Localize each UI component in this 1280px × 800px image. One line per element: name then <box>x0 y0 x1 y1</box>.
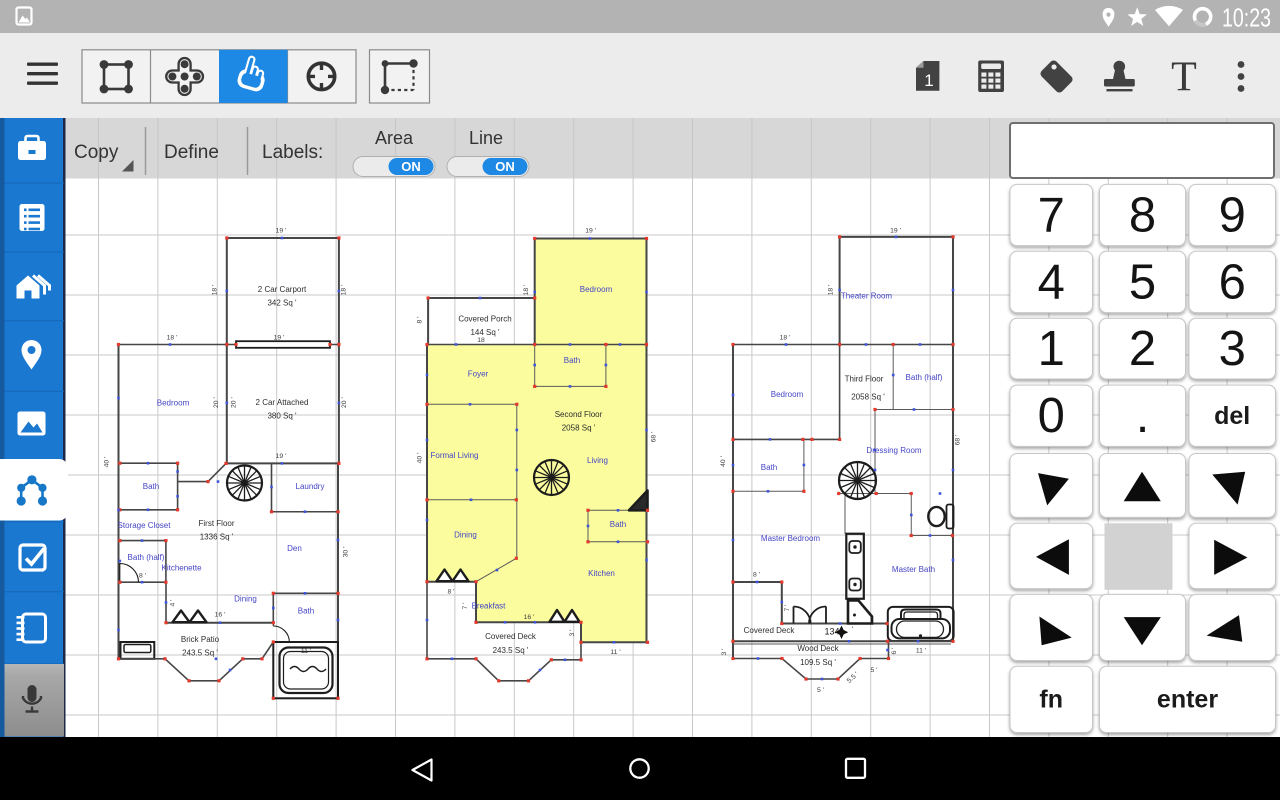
svg-text:ON: ON <box>401 159 421 174</box>
svg-text:Bath: Bath <box>761 463 777 472</box>
svg-text:Dining: Dining <box>234 595 257 604</box>
svg-text:Wood Deck: Wood Deck <box>797 644 839 653</box>
svg-text:Bath (half): Bath (half) <box>906 373 943 382</box>
svg-text:Dressing Room: Dressing Room <box>866 446 921 455</box>
svg-text:5: 5 <box>1129 255 1156 309</box>
svg-text:0: 0 <box>1038 389 1065 443</box>
svg-text:40 ': 40 ' <box>720 456 727 467</box>
svg-text:1: 1 <box>924 71 933 90</box>
svg-text:68 ': 68 ' <box>651 432 658 443</box>
svg-text:4: 4 <box>1038 255 1065 309</box>
svg-text:18: 18 <box>477 337 485 344</box>
svg-text:40 ': 40 ' <box>417 453 424 464</box>
svg-text:11 ': 11 ' <box>301 648 311 655</box>
svg-text:Den: Den <box>287 544 302 553</box>
svg-text:11 ': 11 ' <box>916 648 926 655</box>
svg-text:Second Floor: Second Floor <box>555 410 603 419</box>
svg-text:Dining: Dining <box>454 531 477 540</box>
svg-text:Bath: Bath <box>143 482 159 491</box>
svg-text:30 ': 30 ' <box>343 547 350 558</box>
svg-text:Theater Room: Theater Room <box>841 292 892 301</box>
svg-text:Bath: Bath <box>564 356 580 365</box>
svg-text:Living: Living <box>587 456 608 465</box>
svg-text:Bath: Bath <box>610 520 626 529</box>
svg-text:Third Floor: Third Floor <box>845 375 884 384</box>
svg-text:11 ': 11 ' <box>610 649 620 656</box>
svg-text:Labels:: Labels: <box>262 142 323 163</box>
svg-text:1336 Sq ': 1336 Sq ' <box>200 533 234 542</box>
svg-text:144 Sq ': 144 Sq ' <box>470 328 500 337</box>
svg-text:380 Sq ': 380 Sq ' <box>267 412 297 421</box>
svg-text:Line: Line <box>469 128 503 148</box>
svg-text:4 ': 4 ' <box>170 600 177 607</box>
svg-text:Breakfast: Breakfast <box>472 602 507 611</box>
svg-text:2058 Sq ': 2058 Sq ' <box>851 393 885 402</box>
svg-text:Brick Patio: Brick Patio <box>181 635 220 644</box>
svg-text:342 Sq ': 342 Sq ' <box>267 299 297 308</box>
svg-text:20 ': 20 ' <box>341 397 348 408</box>
svg-text:18 ': 18 ' <box>212 285 219 296</box>
svg-text:Covered Deck: Covered Deck <box>744 626 796 635</box>
svg-text:Define: Define <box>164 142 219 163</box>
svg-text:18 ': 18 ' <box>780 335 791 342</box>
svg-text:Bath (half): Bath (half) <box>128 553 165 562</box>
svg-text:Formal Living: Formal Living <box>430 451 478 460</box>
svg-text:del: del <box>1214 402 1250 430</box>
svg-text:7 ': 7 ' <box>462 603 469 610</box>
svg-text:19 ': 19 ' <box>276 228 287 235</box>
svg-text:Bath: Bath <box>298 607 314 616</box>
svg-text:8 ': 8 ' <box>753 572 760 579</box>
svg-text:T: T <box>1171 55 1197 101</box>
svg-text:2: 2 <box>1129 322 1156 376</box>
svg-text:18 ': 18 ' <box>523 285 530 296</box>
svg-text:3 ': 3 ' <box>569 630 576 637</box>
svg-text:16 ': 16 ' <box>215 612 226 619</box>
svg-text:18 ': 18 ' <box>341 285 348 296</box>
svg-text:9: 9 <box>1219 189 1246 243</box>
svg-text:fn: fn <box>1039 685 1063 713</box>
svg-text:Storage Closet: Storage Closet <box>118 521 172 530</box>
svg-text:Bedroom: Bedroom <box>580 285 613 294</box>
svg-text:8 ': 8 ' <box>417 317 424 324</box>
svg-text:19 ': 19 ' <box>276 453 287 460</box>
svg-text:3: 3 <box>1219 322 1246 376</box>
svg-text:.: . <box>1136 389 1150 443</box>
svg-text:243.5 Sq ': 243.5 Sq ' <box>493 646 529 655</box>
svg-text:1: 1 <box>1038 322 1065 376</box>
svg-text:19 ': 19 ' <box>890 228 901 235</box>
svg-text:8 ': 8 ' <box>448 589 455 596</box>
svg-text:8 ': 8 ' <box>139 573 146 580</box>
svg-text:40 ': 40 ' <box>104 457 111 468</box>
svg-text:Master Bath: Master Bath <box>892 565 935 574</box>
svg-text:20 ': 20 ' <box>231 397 238 408</box>
svg-text:Master Bedroom: Master Bedroom <box>761 534 820 543</box>
svg-text:enter: enter <box>1157 685 1218 713</box>
svg-text:243.5 Sq ': 243.5 Sq ' <box>182 649 218 658</box>
svg-text:109.5 Sq ': 109.5 Sq ' <box>800 658 836 667</box>
svg-text:Kitchenette: Kitchenette <box>161 564 202 573</box>
svg-text:Bedroom: Bedroom <box>771 390 804 399</box>
svg-text:8: 8 <box>1129 189 1156 243</box>
svg-text:19 ': 19 ' <box>585 228 596 235</box>
svg-text:Foyer: Foyer <box>468 370 489 379</box>
svg-text:6: 6 <box>1219 255 1246 309</box>
svg-text:Laundry: Laundry <box>296 482 325 491</box>
svg-text:10:23: 10:23 <box>1222 3 1271 33</box>
svg-text:2 Car Carport: 2 Car Carport <box>258 285 307 294</box>
svg-text:16 ': 16 ' <box>524 614 535 621</box>
svg-text:Copy: Copy <box>74 142 119 163</box>
svg-text:7: 7 <box>1038 189 1065 243</box>
svg-text:ON: ON <box>495 159 515 174</box>
svg-text:5 ': 5 ' <box>817 687 824 694</box>
svg-text:First Floor: First Floor <box>199 519 235 528</box>
svg-text:68 ': 68 ' <box>955 435 962 446</box>
svg-text:2 Car Attached: 2 Car Attached <box>256 398 309 407</box>
svg-text:7 ': 7 ' <box>784 605 791 612</box>
svg-text:19 ': 19 ' <box>274 335 285 342</box>
svg-text:6 ': 6 ' <box>891 648 898 655</box>
svg-text:Bedroom: Bedroom <box>157 399 190 408</box>
svg-text:Kitchen: Kitchen <box>588 569 615 578</box>
svg-text:Covered Deck: Covered Deck <box>485 632 537 641</box>
svg-text:18 ': 18 ' <box>167 335 178 342</box>
svg-text:Covered Porch: Covered Porch <box>458 315 511 324</box>
svg-text:': ' <box>852 627 853 634</box>
svg-text:3 ': 3 ' <box>721 649 728 656</box>
svg-text:Area: Area <box>375 128 414 148</box>
svg-text:20 ': 20 ' <box>213 397 220 408</box>
svg-text:2058 Sq ': 2058 Sq ' <box>562 424 596 433</box>
svg-text:18 ': 18 ' <box>828 285 835 296</box>
svg-text:5 ': 5 ' <box>871 667 878 674</box>
